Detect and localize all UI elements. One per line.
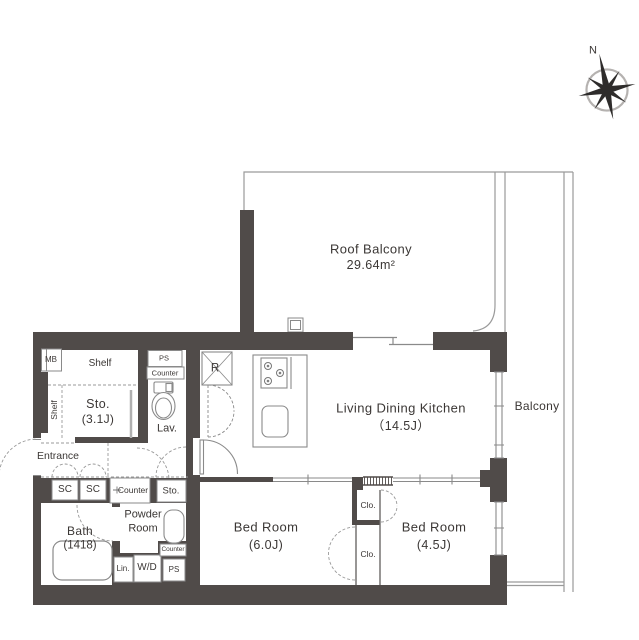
label-storage: Sto.: [86, 398, 110, 411]
bedroom45-sliding-track: [393, 475, 480, 485]
label-counter-top: Counter: [152, 369, 179, 377]
label-linen: Lin.: [117, 565, 130, 573]
closet-upper-bifold-arc: [381, 490, 397, 522]
powder-door-arc: [156, 447, 186, 477]
label-balcony: Balcony: [515, 400, 560, 412]
shoe-cabinet-arc-1: [52, 464, 78, 477]
label-roof-balcony-area: 29.64m²: [347, 259, 396, 272]
label-shelf-top: Shelf: [89, 359, 112, 369]
label-storage-area: (3.1J): [82, 413, 114, 425]
label-shoe-cabinet-2: SC: [86, 485, 100, 495]
floor-plan: Roof Balcony 29.64m² Living Dining Kitch…: [0, 0, 639, 640]
closet-lower-bifold-arc: [329, 527, 356, 580]
bedroom6-sliding-track: [273, 475, 352, 485]
label-shelf-side: Shelf: [50, 400, 59, 419]
label-ldk-area: （14.5J）: [372, 420, 430, 433]
label-bedroom-6: Bed Room: [234, 521, 299, 534]
label-washer-dryer: W/D: [137, 563, 156, 573]
ldk-door: [200, 440, 238, 474]
compass-rose-icon: [567, 47, 639, 129]
east-window-bedroom: [494, 502, 504, 555]
label-refrigerator: R: [211, 363, 219, 375]
hatched-window: [363, 477, 393, 486]
label-pipe-space-bottom: PS: [169, 566, 180, 574]
label-powder-room-2: Room: [128, 524, 157, 535]
label-bedroom-45-area: (4.5J): [417, 539, 451, 552]
label-closet-lower: Clo.: [360, 550, 375, 559]
drain-box: [288, 318, 303, 332]
toilet-icon: [152, 382, 175, 420]
label-ldk: Living Dining Kitchen: [336, 402, 466, 415]
washbasin-icon: [164, 510, 184, 543]
label-storage-small: Sto.: [163, 486, 180, 496]
label-bath: Bath: [67, 525, 93, 537]
label-pipe-space-top: PS: [159, 354, 169, 362]
label-compass-north: N: [589, 46, 597, 57]
label-bedroom-45: Bed Room: [402, 521, 467, 534]
label-bath-size: (1418): [63, 540, 96, 552]
lavatory-door-arc: [137, 448, 169, 480]
east-window-ldk: [494, 372, 504, 458]
label-lavatory: Lav.: [157, 424, 177, 435]
label-closet-upper: Clo.: [360, 501, 375, 510]
label-powder-room-1: Powder: [124, 510, 161, 521]
label-counter-mid: Counter: [118, 486, 148, 495]
label-roof-balcony: Roof Balcony: [330, 243, 412, 256]
sink-icon: [262, 406, 288, 437]
label-shoe-cabinet-1: SC: [58, 485, 72, 495]
entrance-door: [0, 439, 41, 477]
label-meter-box: MB: [45, 356, 57, 364]
label-counter-small: Counter: [161, 547, 184, 554]
kitchen-counter: [253, 355, 307, 447]
label-entrance: Entrance: [37, 451, 79, 462]
shoe-cabinet-arc-2: [80, 464, 106, 477]
north-sliding-window: [353, 338, 433, 345]
label-bedroom-6-area: (6.0J): [249, 539, 283, 552]
